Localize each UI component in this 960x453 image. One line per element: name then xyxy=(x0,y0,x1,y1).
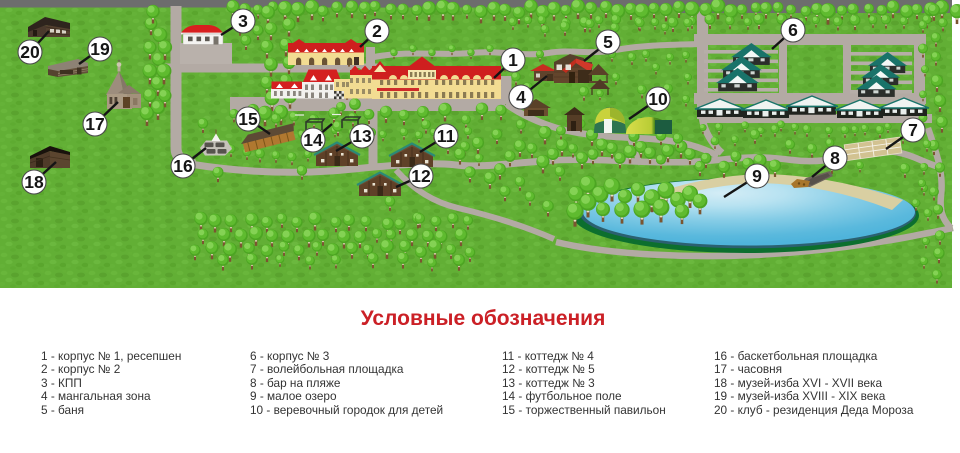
svg-text:17: 17 xyxy=(85,114,104,134)
svg-text:3: 3 xyxy=(238,11,248,31)
svg-text:6: 6 xyxy=(788,20,798,40)
svg-text:14: 14 xyxy=(303,130,323,150)
svg-text:18: 18 xyxy=(24,172,44,192)
svg-text:8: 8 xyxy=(830,148,840,168)
svg-text:9: 9 xyxy=(752,166,762,186)
svg-text:7: 7 xyxy=(908,120,918,140)
svg-text:19: 19 xyxy=(90,39,110,59)
svg-text:16: 16 xyxy=(173,156,193,176)
svg-text:10: 10 xyxy=(648,89,668,109)
svg-text:4: 4 xyxy=(516,87,526,107)
svg-text:11: 11 xyxy=(437,126,456,146)
svg-text:20: 20 xyxy=(20,42,40,62)
svg-text:15: 15 xyxy=(238,109,258,129)
svg-text:5: 5 xyxy=(603,32,613,52)
svg-text:12: 12 xyxy=(411,166,431,186)
svg-text:13: 13 xyxy=(352,126,372,146)
svg-text:2: 2 xyxy=(372,21,382,41)
svg-text:1: 1 xyxy=(508,50,518,70)
